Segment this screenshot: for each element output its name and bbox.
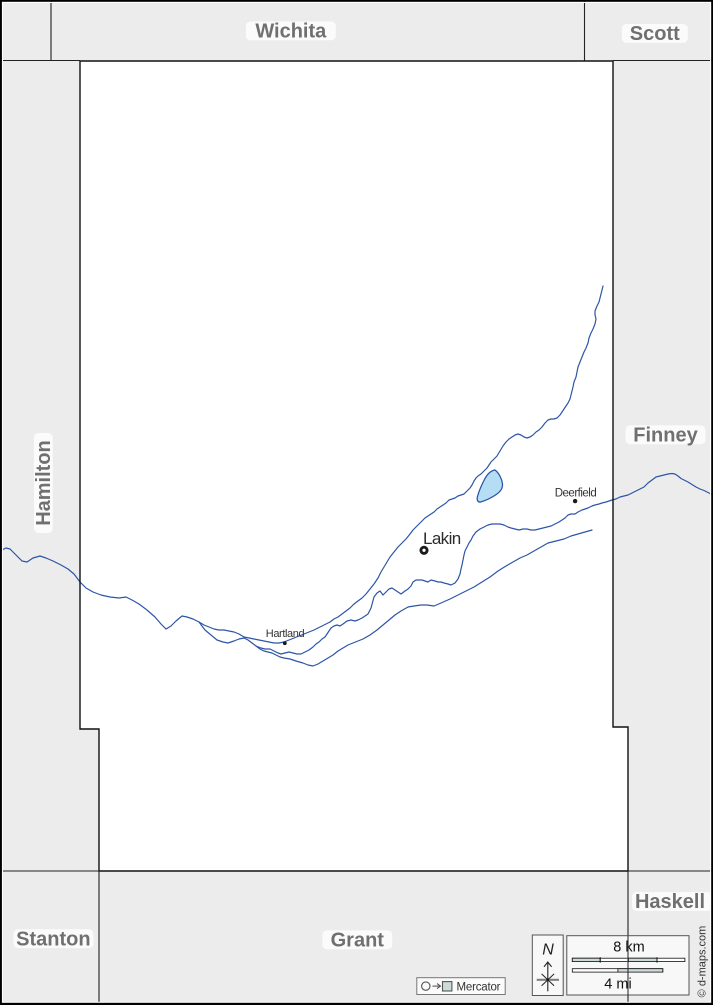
svg-text:Deerfield: Deerfield [555,487,597,499]
svg-text:Hamilton: Hamilton [33,440,55,526]
svg-text:N: N [542,942,554,959]
svg-text:© d-maps.com: © d-maps.com [697,926,709,998]
svg-text:Wichita: Wichita [255,21,327,43]
svg-text:Lakin: Lakin [423,529,461,548]
svg-text:Haskell: Haskell [635,891,705,913]
svg-text:Grant: Grant [331,930,385,952]
svg-text:8 km: 8 km [613,940,644,956]
svg-text:Stanton: Stanton [16,928,90,950]
svg-text:Mercator: Mercator [457,981,501,993]
svg-text:Scott: Scott [630,23,680,45]
svg-text:Finney: Finney [633,425,698,447]
svg-text:Hartland: Hartland [266,628,305,640]
